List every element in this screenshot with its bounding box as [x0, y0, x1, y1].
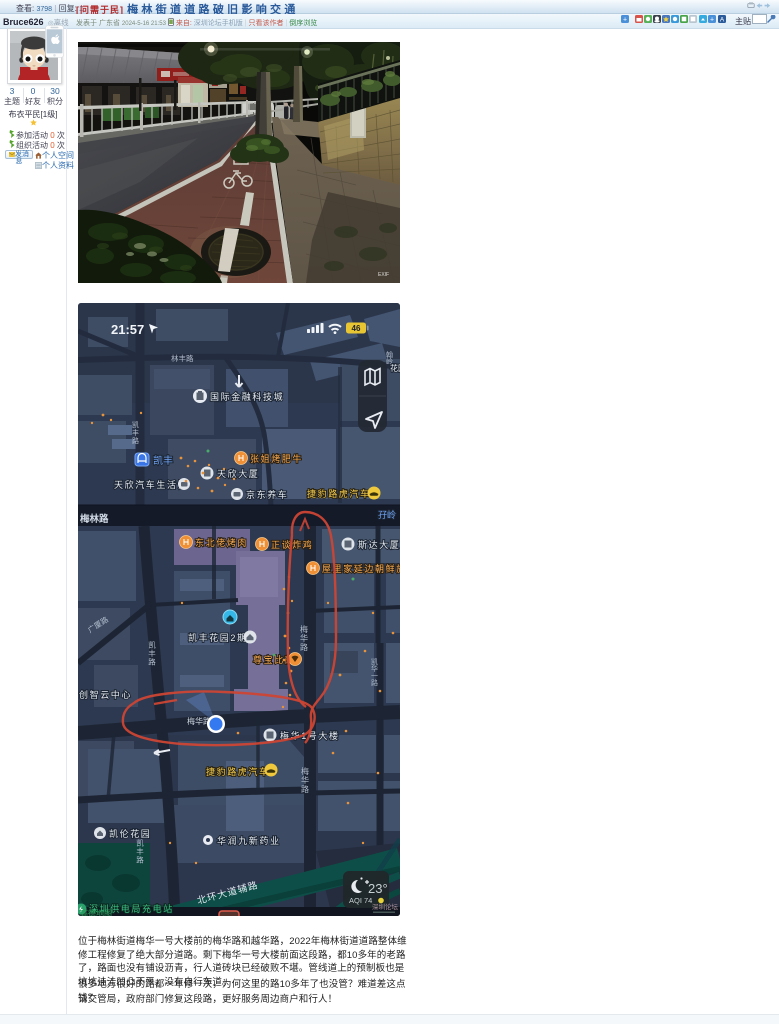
- svg-text:凯丰路: 凯丰路: [147, 640, 156, 667]
- svg-text:捷豹路虎汽车: 捷豹路虎汽车: [307, 488, 371, 499]
- svg-text:斯达大厦: 斯达大厦: [358, 539, 400, 550]
- svg-text:林丰路: 林丰路: [171, 353, 194, 363]
- svg-text:21:57: 21:57: [111, 322, 144, 337]
- svg-text:凯丰路: 凯丰路: [132, 420, 140, 445]
- svg-text:天欣汽车生活馆: 天欣汽车生活馆: [114, 479, 188, 490]
- svg-text:+: +: [710, 17, 714, 24]
- svg-text:凯丰: 凯丰: [153, 454, 173, 467]
- svg-text:孖岭: 孖岭: [378, 509, 396, 520]
- svg-text:花园: 花园: [390, 363, 400, 373]
- svg-text:凯丰路: 凯丰路: [135, 838, 144, 865]
- svg-text:凯华一路: 凯华一路: [371, 657, 379, 687]
- svg-text:深圳论坛: 深圳论坛: [372, 902, 399, 911]
- svg-text:A: A: [720, 17, 725, 24]
- svg-text:EXIF: EXIF: [378, 272, 389, 278]
- svg-text:国际金融科技城: 国际金融科技城: [210, 391, 284, 402]
- svg-text:东北佬烤肉: 东北佬烤肉: [195, 537, 248, 548]
- svg-text:凯丰花园2期: 凯丰花园2期: [188, 632, 248, 643]
- svg-text:高德地图: 高德地图: [80, 908, 112, 916]
- svg-text:梅华路: 梅华路: [301, 766, 310, 794]
- svg-text:华润九新药业: 华润九新药业: [217, 835, 281, 846]
- svg-text:凯伦花园: 凯伦花园: [109, 828, 151, 839]
- svg-text:梅华路: 梅华路: [300, 624, 309, 652]
- svg-text:创智云中心: 创智云中心: [79, 689, 132, 700]
- svg-text:梅林路: 梅林路: [80, 513, 109, 525]
- svg-text:京东养车: 京东养车: [246, 489, 288, 500]
- svg-text:张姐烤肥牛: 张姐烤肥牛: [250, 453, 303, 464]
- svg-text:23°: 23°: [368, 881, 388, 896]
- svg-text:捷豹路虎汽车: 捷豹路虎汽车: [206, 766, 270, 777]
- svg-text:46: 46: [352, 324, 361, 333]
- svg-text:+: +: [623, 17, 627, 24]
- svg-text:AQI 74: AQI 74: [349, 896, 372, 905]
